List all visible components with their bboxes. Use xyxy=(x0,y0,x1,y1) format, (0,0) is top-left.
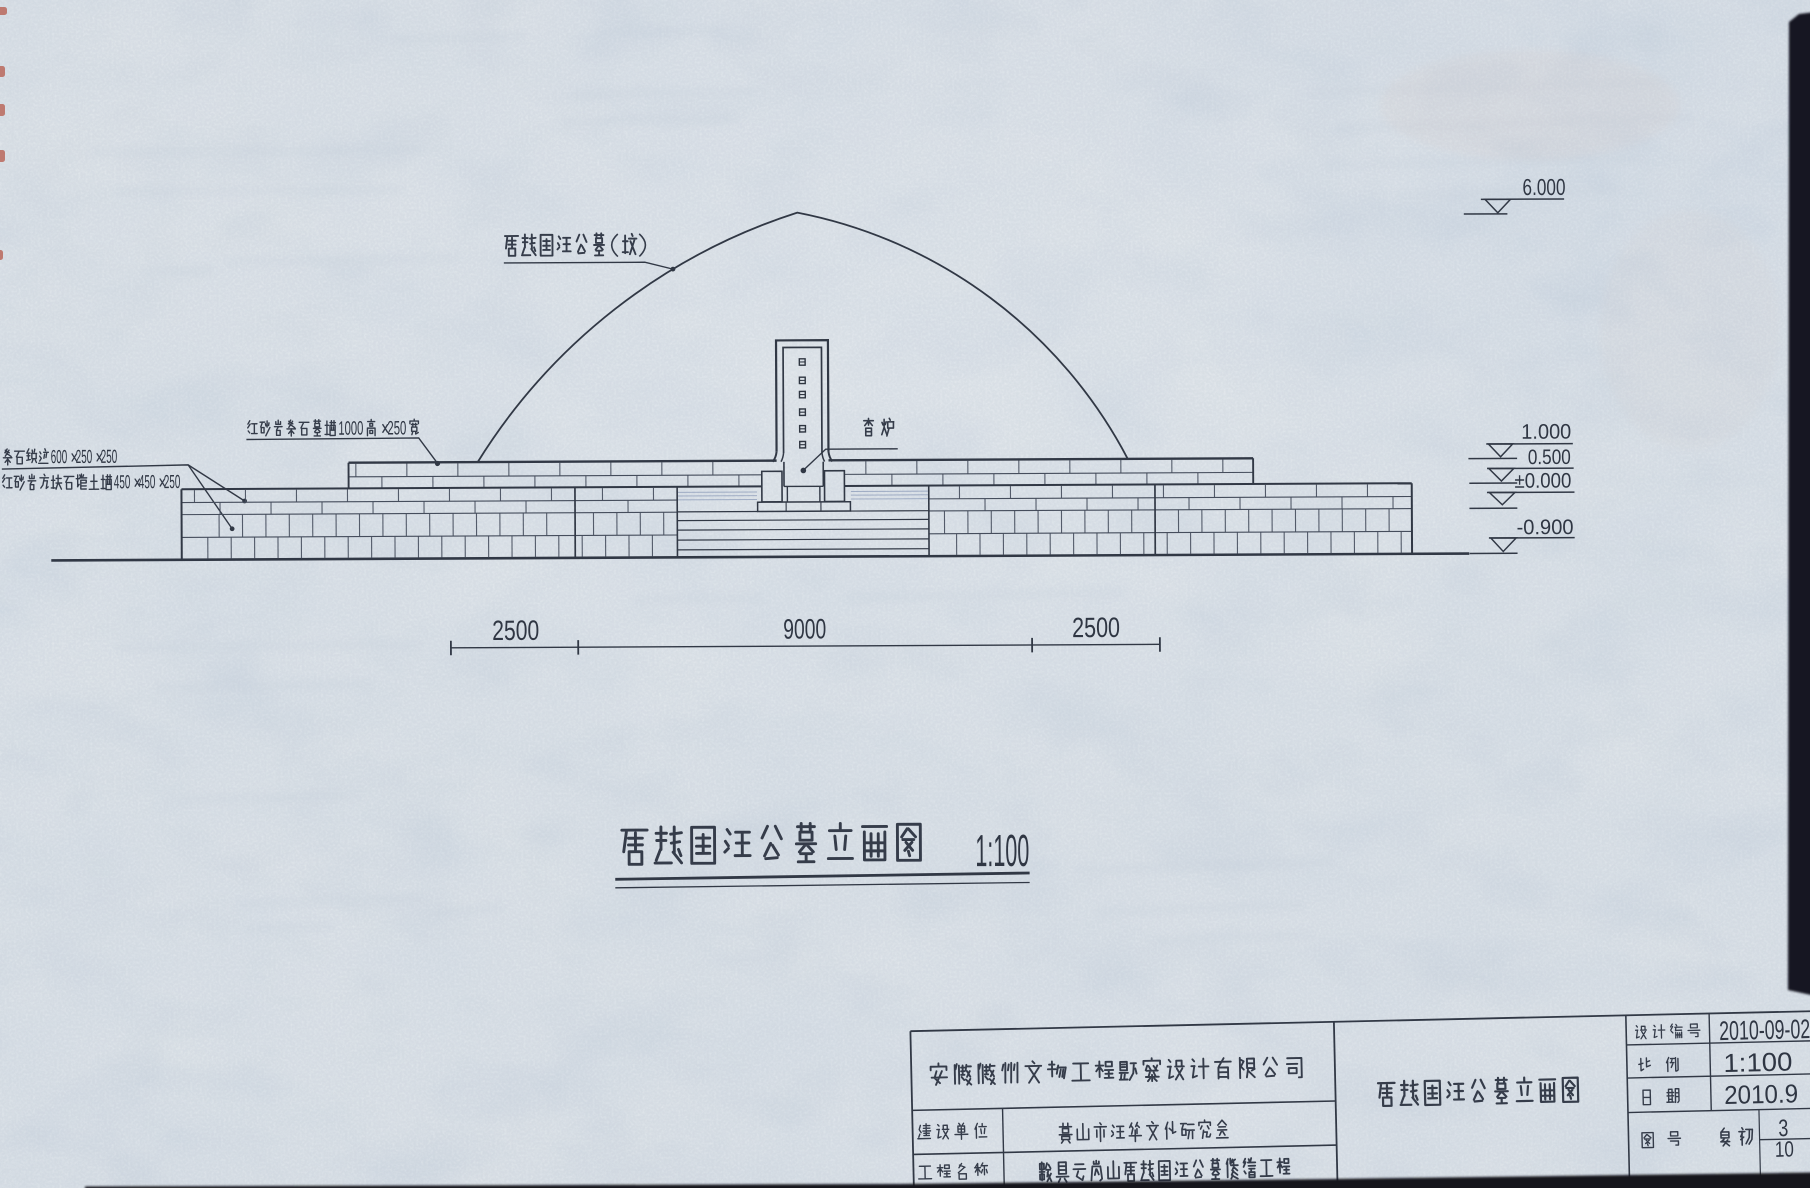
svg-text:10: 10 xyxy=(1775,1136,1795,1161)
svg-text:2010.9: 2010.9 xyxy=(1724,1078,1799,1110)
svg-text:450: 450 xyxy=(114,472,131,493)
svg-text:250: 250 xyxy=(76,447,93,468)
svg-text:-0.900: -0.900 xyxy=(1516,516,1573,539)
svg-text:±0.000: ±0.000 xyxy=(1514,470,1571,493)
svg-text:6.000: 6.000 xyxy=(1522,174,1565,200)
svg-text:1:100: 1:100 xyxy=(1723,1046,1793,1078)
svg-text:450: 450 xyxy=(139,472,156,493)
svg-text:250: 250 xyxy=(387,417,406,439)
svg-text:2500: 2500 xyxy=(492,615,539,646)
svg-text:0.500: 0.500 xyxy=(1528,446,1571,469)
svg-text:600: 600 xyxy=(51,447,68,468)
svg-text:1:100: 1:100 xyxy=(975,825,1029,876)
svg-text:250: 250 xyxy=(164,472,181,493)
svg-text:1000: 1000 xyxy=(338,418,363,440)
svg-text:2010-09-02: 2010-09-02 xyxy=(1719,1014,1810,1046)
svg-text:250: 250 xyxy=(101,447,118,468)
svg-text:9000: 9000 xyxy=(783,613,826,644)
svg-text:2500: 2500 xyxy=(1072,612,1120,643)
svg-text:1.000: 1.000 xyxy=(1521,421,1571,444)
